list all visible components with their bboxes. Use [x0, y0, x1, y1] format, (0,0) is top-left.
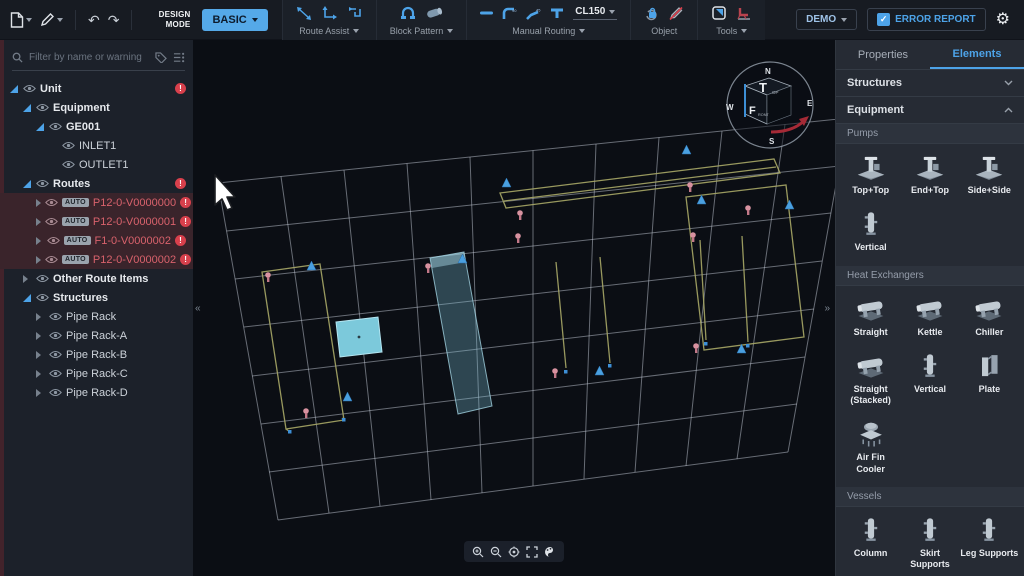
filter-input[interactable] — [29, 52, 149, 63]
eye-icon[interactable] — [62, 141, 75, 150]
object-no-edit-icon[interactable] — [668, 6, 684, 21]
catalog-item-hx-chiller[interactable]: Chiller — [960, 295, 1019, 338]
mouse-cursor — [215, 175, 235, 210]
eye-icon[interactable] — [23, 84, 36, 93]
object-label: Object — [651, 26, 677, 36]
route-assist-dropdown[interactable]: Route Assist — [299, 26, 359, 36]
cube-top-face[interactable]: T — [759, 80, 767, 95]
chevron-down-icon — [1004, 80, 1013, 86]
compass-north-label[interactable]: N — [765, 67, 771, 76]
catalog-item-hx-plate[interactable]: Plate — [960, 352, 1019, 407]
tree-item-pipe-rack-a[interactable]: Pipe Rack-A — [0, 326, 193, 345]
search-icon — [12, 52, 23, 63]
caret-down-icon — [252, 18, 258, 22]
auto-badge: AUTO — [62, 255, 89, 264]
tab-elements[interactable]: Elements — [930, 40, 1024, 69]
model-tree-sidebar: Unit ! Equipment GE001 INLET1 OU — [0, 40, 193, 576]
catalog-panel: Properties Elements Structures Equipment… — [835, 40, 1024, 576]
route-assist-group: Route Assist — [282, 0, 376, 40]
viewport-3d[interactable]: N E S W T OP F RONT « » — [193, 40, 835, 576]
catalog-item-pump-vertical[interactable]: Vertical — [841, 210, 900, 253]
vessels-grid: Column Skirt Supports Leg Supports — [836, 507, 1024, 576]
settings-gear-icon[interactable]: ⚙ — [996, 12, 1010, 28]
tree-item-routes[interactable]: Routes ! — [0, 174, 193, 193]
tools-support-icon[interactable] — [736, 6, 752, 21]
pump-icon — [854, 153, 888, 181]
catalog-item-hx-kettle[interactable]: Kettle — [900, 295, 959, 338]
expander-closed-icon[interactable] — [36, 217, 41, 226]
elbow-90-icon[interactable]: 90 — [502, 7, 517, 20]
heat-exchanger-icon — [913, 295, 947, 323]
eye-icon[interactable] — [62, 160, 75, 169]
expander-closed-icon[interactable] — [36, 198, 41, 207]
catalog-item-hx-straight[interactable]: Straight — [841, 295, 900, 338]
caret-down-icon[interactable] — [57, 18, 63, 22]
error-badge: ! — [180, 254, 191, 265]
expander-spacer — [49, 141, 58, 150]
caret-down-icon — [447, 29, 453, 33]
tree-item-route-p12-0-v0000001[interactable]: AUTO P12-0-V0000001 ! — [0, 212, 193, 231]
tree-item-route-p12-0-v0000002[interactable]: AUTO P12-0-V0000002 ! — [0, 250, 193, 269]
eye-icon[interactable] — [45, 255, 58, 264]
error-badge: ! — [180, 197, 191, 208]
expander-open-icon[interactable] — [36, 122, 45, 131]
catalog-item-vessel-column[interactable]: Column — [841, 516, 900, 571]
expander-spacer — [49, 160, 58, 169]
expander-closed-icon[interactable] — [36, 331, 45, 340]
section-structures[interactable]: Structures — [836, 70, 1024, 97]
caret-down-icon — [609, 10, 615, 14]
expander-open-icon[interactable] — [10, 84, 19, 93]
catalog-item-hx-air-fin-cooler[interactable]: Air Fin Cooler — [841, 420, 900, 475]
tree-item-pipe-rack[interactable]: Pipe Rack — [0, 307, 193, 326]
eye-icon[interactable] — [49, 312, 62, 321]
zoom-out-button[interactable] — [490, 546, 502, 558]
demo-dropdown-button[interactable]: DEMO — [796, 9, 857, 30]
top-toolbar: ↶ ↷ DESIGN MODE BASIC — [0, 0, 1024, 40]
heat-exchanger-icon — [854, 352, 888, 380]
divider — [131, 10, 132, 30]
eye-icon[interactable] — [36, 293, 49, 302]
plate-exchanger-icon — [972, 352, 1006, 380]
block-pattern-group: Block Pattern — [376, 0, 467, 40]
model-tree: Unit ! Equipment GE001 INLET1 OU — [0, 79, 193, 402]
eye-icon[interactable] — [49, 122, 62, 131]
pipe-base-points — [288, 342, 750, 434]
manual-routing-group: 90 45 CL150 Manual Routing — [466, 0, 630, 40]
new-file-button[interactable] — [10, 12, 32, 28]
object-group: Object — [630, 0, 697, 40]
render-mode-button[interactable] — [544, 546, 556, 558]
error-badge: ! — [180, 216, 191, 227]
svg-text:45: 45 — [536, 7, 541, 12]
route-assist-hook-icon[interactable] — [347, 6, 363, 21]
eye-icon[interactable] — [47, 236, 60, 245]
expander-closed-icon[interactable] — [36, 255, 41, 264]
expander-closed-icon[interactable] — [23, 274, 32, 283]
equipment-column[interactable] — [430, 252, 492, 414]
expander-closed-icon[interactable] — [36, 236, 43, 245]
object-lock-icon[interactable] — [644, 6, 659, 21]
tree-item-ge001[interactable]: GE001 — [0, 117, 193, 136]
expander-closed-icon[interactable] — [36, 388, 45, 397]
block-pattern-cylinder-icon[interactable] — [425, 6, 443, 20]
tree-item-inlet1[interactable]: INLET1 — [0, 136, 193, 155]
tools-cube-icon[interactable] — [711, 5, 727, 21]
toolbar-groups: Route Assist Block Pattern — [282, 0, 766, 40]
catalog-item-hx-vertical[interactable]: Vertical — [900, 352, 959, 407]
tree-item-outlet1[interactable]: OUTLET1 — [0, 155, 193, 174]
route-assist-free-icon[interactable] — [296, 6, 313, 21]
spec-select[interactable]: CL150 — [573, 6, 617, 20]
tree-item-structures[interactable]: Structures — [0, 288, 193, 307]
error-badge: ! — [175, 235, 186, 246]
tools-dropdown[interactable]: Tools — [716, 26, 747, 36]
tag-icon[interactable] — [155, 52, 167, 63]
eye-icon[interactable] — [49, 369, 62, 378]
caret-down-icon — [579, 29, 585, 33]
expander-open-icon[interactable] — [23, 179, 32, 188]
tee-icon[interactable] — [550, 7, 564, 19]
route-assist-orthogonal-icon[interactable] — [322, 6, 338, 21]
compass-south-label[interactable]: S — [769, 137, 775, 146]
tree-item-unit[interactable]: Unit ! — [0, 79, 193, 98]
application-window: ↶ ↷ DESIGN MODE BASIC — [0, 0, 1024, 576]
eye-icon[interactable] — [49, 388, 62, 397]
design-mode-label: DESIGN MODE — [144, 10, 190, 28]
expander-closed-icon[interactable] — [36, 312, 45, 321]
expander-closed-icon[interactable] — [36, 350, 45, 359]
pumps-grid: Top+Top End+Top Side+Side Vertical — [836, 144, 1024, 266]
eye-icon[interactable] — [36, 103, 49, 112]
tree-item-route-f1-0-v0000002[interactable]: AUTO F1-0-V0000002 ! — [0, 231, 193, 250]
skirt-supports-icon — [913, 516, 947, 544]
viewport-controls — [464, 541, 564, 562]
redo-button[interactable]: ↷ — [108, 13, 120, 27]
tree-item-pipe-rack-c[interactable]: Pipe Rack-C — [0, 364, 193, 383]
tree-item-other-route-items[interactable]: Other Route Items — [0, 269, 193, 288]
caret-down-icon — [841, 18, 847, 22]
error-badge: ! — [175, 178, 186, 189]
eye-icon[interactable] — [45, 217, 58, 226]
air-fin-cooler-icon — [854, 420, 888, 448]
vertical-exchanger-icon — [913, 352, 947, 380]
block-pattern-clamp-icon[interactable] — [400, 6, 416, 20]
heat-exchangers-grid: Straight Kettle Chiller Straight (Stacke… — [836, 286, 1024, 487]
leg-supports-icon — [972, 516, 1006, 544]
pump-icon — [913, 153, 947, 181]
chevron-up-icon — [1004, 107, 1013, 113]
compass-east-label[interactable]: E — [807, 99, 813, 108]
heat-exchanger-icon — [972, 295, 1006, 323]
catalog-item-vessel-skirt-supports[interactable]: Skirt Supports — [900, 516, 959, 571]
manual-routing-dropdown[interactable]: Manual Routing — [512, 26, 585, 36]
block-pattern-dropdown[interactable]: Block Pattern — [390, 26, 454, 36]
group-header-vessels: Vessels — [836, 487, 1024, 507]
heat-exchanger-icon — [854, 295, 888, 323]
elbow-45-icon[interactable]: 45 — [526, 7, 541, 20]
fullscreen-button[interactable] — [526, 546, 538, 558]
catalog-item-vessel-leg-supports[interactable]: Leg Supports — [960, 516, 1019, 571]
tools-group: Tools — [697, 0, 765, 40]
undo-button[interactable]: ↶ — [88, 13, 100, 27]
tree-filter-row — [12, 52, 185, 71]
columns-settings-icon[interactable] — [173, 52, 185, 63]
mode-select-button[interactable]: BASIC — [202, 9, 267, 31]
expander-open-icon[interactable] — [23, 103, 32, 112]
compass-west-label[interactable]: W — [726, 103, 734, 112]
toolbar-right: DEMO ✓ ERROR REPORT ⚙ — [796, 8, 1024, 31]
catalog-item-pump-side-side[interactable]: Side+Side — [960, 153, 1019, 196]
divider — [75, 10, 76, 30]
caret-down-icon — [741, 29, 747, 33]
catalog-item-pump-end-top[interactable]: End+Top — [900, 153, 959, 196]
tree-item-pipe-rack-b[interactable]: Pipe Rack-B — [0, 345, 193, 364]
tree-item-pipe-rack-d[interactable]: Pipe Rack-D — [0, 383, 193, 402]
caret-down-icon[interactable] — [26, 18, 32, 22]
group-header-pumps: Pumps — [836, 124, 1024, 144]
catalog-item-pump-top-top[interactable]: Top+Top — [841, 153, 900, 196]
tree-item-equipment[interactable]: Equipment — [0, 98, 193, 117]
eye-icon[interactable] — [49, 350, 62, 359]
cube-front-face[interactable]: F — [749, 105, 756, 117]
eye-icon[interactable] — [36, 274, 49, 283]
collapse-left-panel-handle[interactable]: « — [195, 303, 201, 314]
pump-icon — [972, 153, 1006, 181]
tree-item-route-p12-0-v0000000[interactable]: AUTO P12-0-V0000000 ! — [0, 193, 193, 212]
expander-open-icon[interactable] — [23, 293, 32, 302]
auto-badge: AUTO — [64, 236, 91, 245]
straight-pipe-icon[interactable] — [480, 10, 493, 16]
eye-icon[interactable] — [36, 179, 49, 188]
eye-icon[interactable] — [49, 331, 62, 340]
auto-badge: AUTO — [62, 217, 89, 226]
vertical-pump-icon — [854, 210, 888, 238]
panel-tabs: Properties Elements — [836, 40, 1024, 70]
scene-canvas: N E S W T OP F RONT — [193, 40, 835, 576]
auto-badge: AUTO — [62, 198, 89, 207]
error-report-button[interactable]: ✓ ERROR REPORT — [867, 8, 986, 31]
checkbox-icon: ✓ — [877, 13, 890, 26]
section-equipment[interactable]: Equipment — [836, 97, 1024, 124]
view-compass[interactable]: N E S W T OP F RONT — [726, 62, 813, 148]
svg-text:OP: OP — [772, 90, 779, 95]
svg-text:90: 90 — [512, 8, 517, 13]
edit-pencil-button[interactable] — [40, 12, 63, 27]
column-icon — [854, 516, 888, 544]
expander-closed-icon[interactable] — [36, 369, 45, 378]
zoom-in-button[interactable] — [472, 546, 484, 558]
file-tools-group: ↶ ↷ DESIGN MODE BASIC — [0, 9, 268, 31]
eye-icon[interactable] — [45, 198, 58, 207]
error-badge: ! — [175, 83, 186, 94]
svg-text:RONT: RONT — [758, 113, 769, 117]
tab-properties[interactable]: Properties — [836, 40, 930, 69]
catalog-item-hx-straight-stacked[interactable]: Straight (Stacked) — [841, 352, 900, 407]
caret-down-icon — [353, 29, 359, 33]
collapse-right-panel-handle[interactable]: » — [824, 303, 830, 314]
group-header-heat-exchangers: Heat Exchangers — [836, 266, 1024, 286]
zoom-fit-button[interactable] — [508, 546, 520, 558]
